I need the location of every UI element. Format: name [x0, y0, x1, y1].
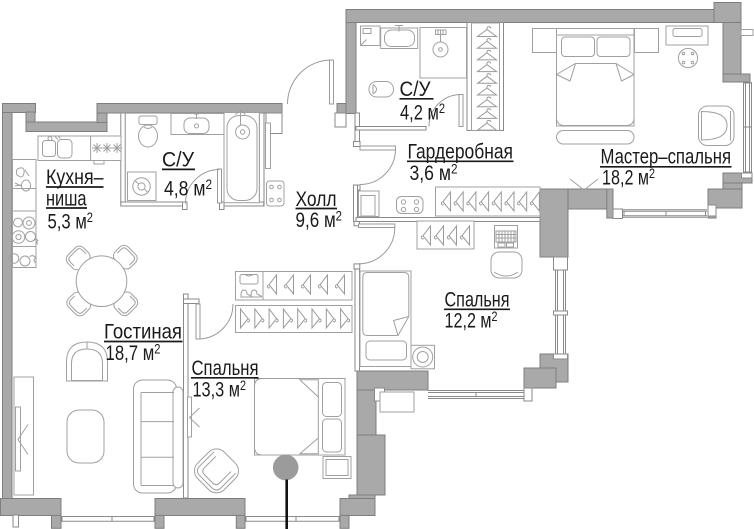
svg-text:9,6 м2: 9,6 м2: [296, 208, 343, 233]
svg-text:Кухня–: Кухня–: [46, 166, 104, 189]
svg-text:5,3 м2: 5,3 м2: [48, 209, 94, 234]
svg-text:ниша: ниша: [46, 188, 87, 211]
svg-text:18,7 м2: 18,7 м2: [106, 340, 161, 365]
svg-text:С/У: С/У: [400, 78, 432, 101]
svg-text:18,2 м2: 18,2 м2: [602, 165, 655, 190]
svg-text:12,2 м2: 12,2 м2: [445, 308, 498, 333]
svg-text:Холл: Холл: [296, 188, 337, 211]
svg-text:Гардеробная: Гардеробная: [408, 141, 514, 164]
svg-text:Гостиная: Гостиная: [104, 321, 182, 344]
svg-text:Спальня: Спальня: [192, 357, 259, 380]
svg-text:13,3 м2: 13,3 м2: [193, 377, 247, 402]
svg-text:Спальня: Спальня: [445, 289, 510, 312]
svg-text:4,8 м2: 4,8 м2: [164, 176, 212, 201]
svg-text:4,2 м2: 4,2 м2: [400, 100, 445, 125]
svg-text:3,6 м2: 3,6 м2: [410, 161, 458, 186]
svg-text:С/У: С/У: [162, 149, 195, 172]
svg-text:Мастер–спальня: Мастер–спальня: [601, 146, 732, 169]
